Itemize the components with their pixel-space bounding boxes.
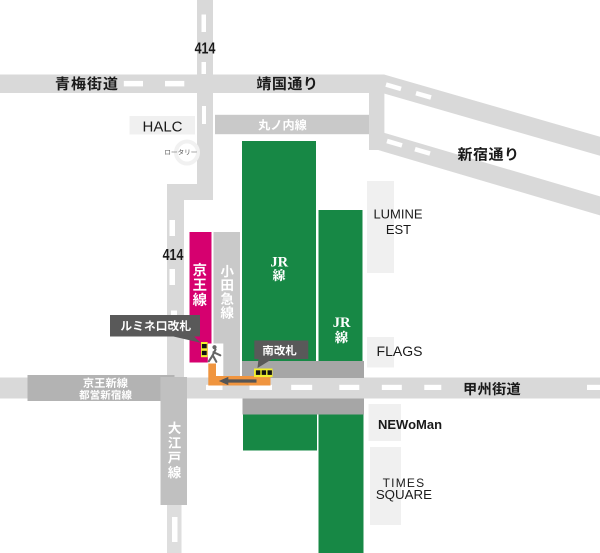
svg-text:HALC: HALC [142,119,182,136]
svg-text:LUMINE: LUMINE [373,207,422,222]
svg-text:NEWoMan: NEWoMan [378,417,442,432]
svg-text:JR: JR [333,315,351,331]
svg-text:JR: JR [270,254,288,270]
svg-text:414: 414 [163,245,184,263]
svg-text:FLAGS: FLAGS [377,343,423,359]
svg-text:SQUARE: SQUARE [376,487,432,502]
svg-text:EST: EST [386,222,411,237]
svg-text:414: 414 [195,39,216,57]
